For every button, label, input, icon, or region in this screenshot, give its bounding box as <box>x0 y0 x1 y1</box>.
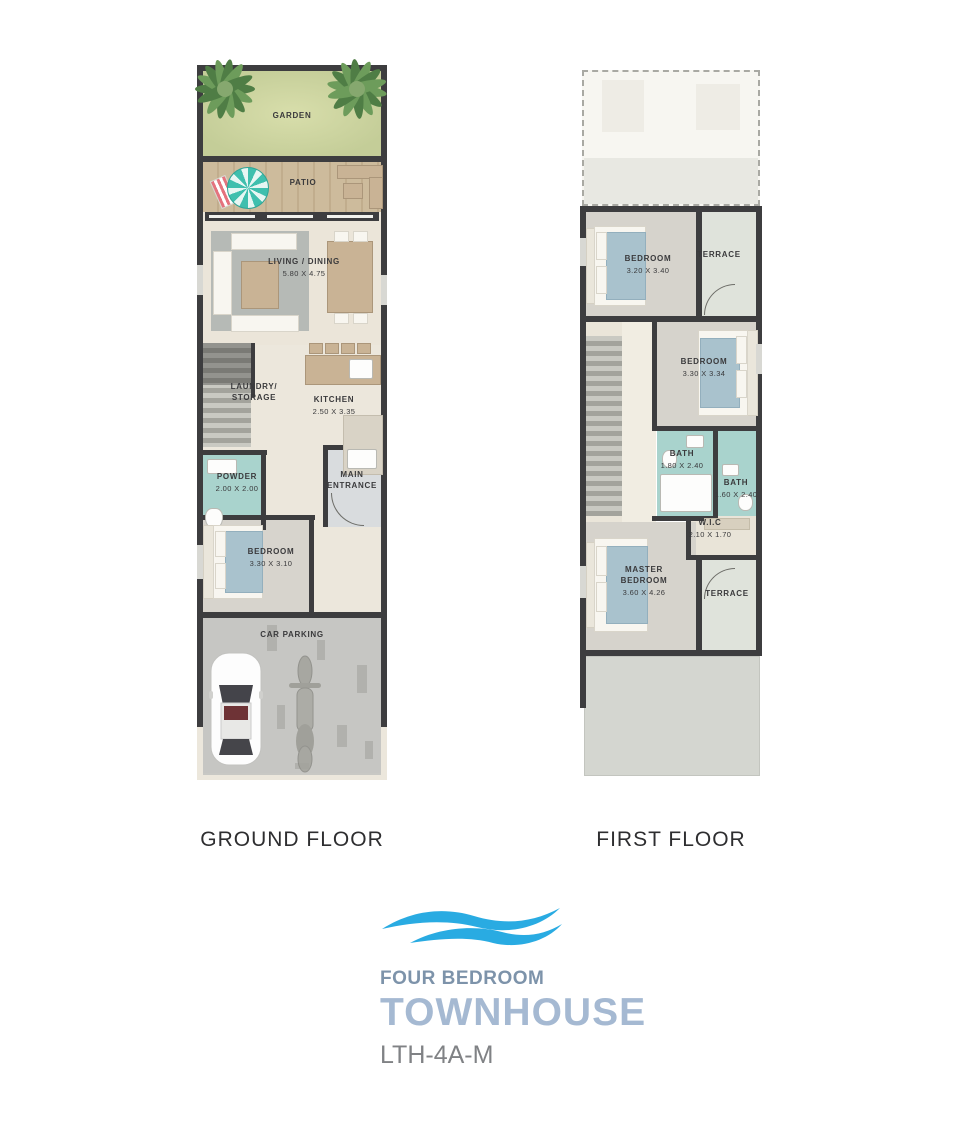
driveway-edge <box>203 773 381 775</box>
bedroom2-label: BEDROOM 3.30 X 3.34 <box>681 357 728 378</box>
master-label-text: MASTER BEDROOM <box>621 565 668 587</box>
sofa <box>231 315 299 332</box>
ground-bedroom-dims-text: 3.30 X 3.10 <box>248 559 295 568</box>
living-dining-label: LIVING / DINING 5.80 X 4.75 <box>268 257 340 278</box>
ghost-furniture <box>602 80 644 132</box>
brand-category: FOUR BEDROOM <box>380 968 646 990</box>
dining-chair <box>334 313 349 324</box>
powder-label-text: POWDER <box>216 472 259 483</box>
paving-tile <box>277 705 285 729</box>
lower-roof-area <box>584 656 760 776</box>
bedroom2-dims-text: 3.30 X 3.34 <box>681 369 728 378</box>
terrace1-label-text: TERRACE <box>697 250 741 261</box>
bath1-label-text: BATH <box>661 449 704 460</box>
bedroom1-dims-text: 3.20 X 3.40 <box>625 266 672 275</box>
bedroom2-label-text: BEDROOM <box>681 357 728 368</box>
window-gap <box>197 265 203 295</box>
window-gap <box>580 566 586 598</box>
bar-stool <box>341 343 355 354</box>
pillow <box>736 336 747 364</box>
staircase-upper <box>203 343 251 385</box>
palm-tree-icon <box>323 55 391 123</box>
pillow <box>596 582 607 612</box>
dining-chair <box>353 313 368 324</box>
bar-stool <box>325 343 339 354</box>
ground-bedroom-label-text: BEDROOM <box>248 547 295 558</box>
patio-umbrella <box>227 167 269 209</box>
sink <box>722 464 739 476</box>
ground-floor-title: GROUND FLOOR <box>197 828 387 852</box>
entrance-label-text: MAIN ENTRANCE <box>327 470 377 492</box>
wall <box>309 515 314 617</box>
palm-tree-icon <box>191 55 259 123</box>
ground-bedroom-label: BEDROOM 3.30 X 3.10 <box>248 547 295 568</box>
wall <box>580 316 762 322</box>
bedroom1-label-text: BEDROOM <box>625 254 672 265</box>
pillow <box>736 370 747 398</box>
master-bedroom-label: MASTER BEDROOM 3.60 X 4.26 <box>621 565 668 597</box>
wall <box>580 206 762 212</box>
patio-table <box>343 183 363 199</box>
sofa <box>231 233 297 250</box>
wave-logo-icon <box>380 901 565 949</box>
motorcycle-top-view <box>287 655 323 773</box>
living-label-text: LIVING / DINING <box>268 257 340 268</box>
patio-label: PATIO <box>290 178 317 189</box>
sofa <box>213 251 232 315</box>
master-dims-text: 3.60 X 4.26 <box>621 588 668 597</box>
first-floor-title: FIRST FLOOR <box>580 828 762 852</box>
pillow <box>596 232 607 260</box>
kitchen-dims-text: 2.50 X 3.35 <box>313 407 356 416</box>
wic-label: W.I.C 2.10 X 1.70 <box>689 518 732 539</box>
pillow <box>596 546 607 576</box>
appliance <box>347 449 377 469</box>
pillow <box>215 563 226 589</box>
sliding-door-panel <box>267 215 313 218</box>
car-top-view <box>209 651 263 767</box>
sink <box>686 435 704 448</box>
bedroom1-label: BEDROOM 3.20 X 3.40 <box>625 254 672 275</box>
floorplan-page: GARDEN PATIO LIVING / DINING 5.80 X 4.75… <box>0 0 970 1131</box>
entrance-label: MAIN ENTRANCE <box>327 470 377 492</box>
living-dims-text: 5.80 X 4.75 <box>268 269 340 278</box>
window-gap <box>580 238 586 266</box>
bath1-label: BATH 1.80 X 2.40 <box>661 449 704 470</box>
ghost-furniture <box>696 84 740 130</box>
open-below-area <box>582 70 760 206</box>
brand-name: TOWNHOUSE <box>380 993 646 1032</box>
wall <box>713 431 718 516</box>
terrace1-label: TERRACE <box>697 250 741 261</box>
paving-tile <box>365 741 373 759</box>
brand-code: LTH-4A-M <box>380 1041 646 1070</box>
laundry-label: LAUNDRY/ STORAGE <box>231 382 278 404</box>
parking-label-text: CAR PARKING <box>260 630 324 641</box>
bath2-label-text: BATH <box>715 478 758 489</box>
ground-floor-plan: GARDEN PATIO LIVING / DINING 5.80 X 4.75… <box>197 65 387 780</box>
bath2-dims-text: 1.60 X 2.40 <box>715 490 758 499</box>
sliding-door-panel <box>209 215 255 218</box>
dining-chair <box>353 231 368 242</box>
garden-label: GARDEN <box>273 111 312 122</box>
wall <box>696 558 702 650</box>
kitchen-label: KITCHEN 2.50 X 3.35 <box>313 395 356 416</box>
window-gap <box>381 275 387 305</box>
paving-tile <box>337 725 347 747</box>
pillow <box>596 266 607 294</box>
wall <box>197 450 267 455</box>
bar-stool <box>357 343 371 354</box>
bathtub <box>660 474 712 512</box>
dining-chair <box>334 231 349 242</box>
pillow <box>215 531 226 557</box>
branding-block: FOUR BEDROOM TOWNHOUSE LTH-4A-M <box>380 901 646 1070</box>
wic-dims-text: 2.10 X 1.70 <box>689 530 732 539</box>
parking-label: CAR PARKING <box>260 630 324 641</box>
bath1-dims-text: 1.80 X 2.40 <box>661 461 704 470</box>
patio-label-text: PATIO <box>290 178 317 189</box>
powder-dims-text: 2.00 X 2.00 <box>216 484 259 493</box>
sliding-door <box>205 212 379 221</box>
kitchen-sink <box>349 359 373 379</box>
wall <box>696 212 702 316</box>
wall <box>652 426 762 431</box>
wall <box>580 650 762 656</box>
kitchen-label-text: KITCHEN <box>313 395 356 406</box>
wall <box>580 656 586 708</box>
window-gap <box>197 545 203 579</box>
patio-sofa <box>369 177 383 209</box>
wall <box>197 156 387 162</box>
laundry-label-text: LAUNDRY/ STORAGE <box>231 382 278 404</box>
powder-label: POWDER 2.00 X 2.00 <box>216 472 259 493</box>
paving-tile <box>357 665 367 693</box>
window-gap <box>756 344 762 374</box>
wall <box>197 612 387 618</box>
bar-stool <box>309 343 323 354</box>
roof-strip <box>584 158 758 204</box>
staircase <box>586 336 622 516</box>
wall <box>756 206 762 656</box>
stair-landing <box>622 322 656 522</box>
bath2-label: BATH 1.60 X 2.40 <box>715 478 758 499</box>
terrace2-label: TERRACE <box>705 589 749 600</box>
terrace2-label-text: TERRACE <box>705 589 749 600</box>
first-floor-plan: BEDROOM 3.20 X 3.40 TERRACE BEDROOM 3.30… <box>580 68 762 778</box>
garden-label-text: GARDEN <box>273 111 312 122</box>
sliding-door-panel <box>327 215 373 218</box>
wic-label-text: W.I.C <box>689 518 732 529</box>
wall <box>652 322 657 426</box>
